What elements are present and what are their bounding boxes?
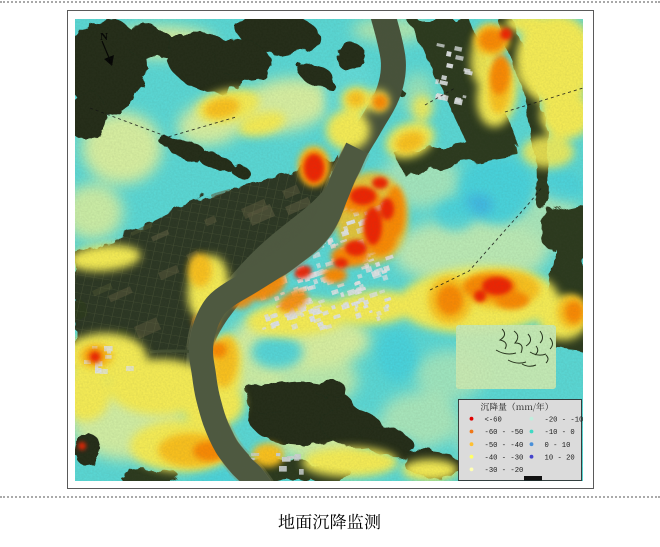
svg-text:10 - 20: 10 - 20: [545, 454, 575, 462]
svg-text:-60 - -50: -60 - -50: [485, 429, 524, 437]
svg-text:-10 - 0: -10 - 0: [545, 429, 575, 437]
svg-text:-30 - -20: -30 - -20: [485, 467, 524, 475]
svg-text:-50 - -40: -50 - -40: [485, 442, 524, 450]
svg-text:-40 - -30: -40 - -30: [485, 454, 524, 462]
svg-text:<-60: <-60: [485, 416, 502, 424]
svg-text:0 - 10: 0 - 10: [545, 442, 571, 450]
svg-text:-20 - -10: -20 - -10: [545, 416, 584, 424]
